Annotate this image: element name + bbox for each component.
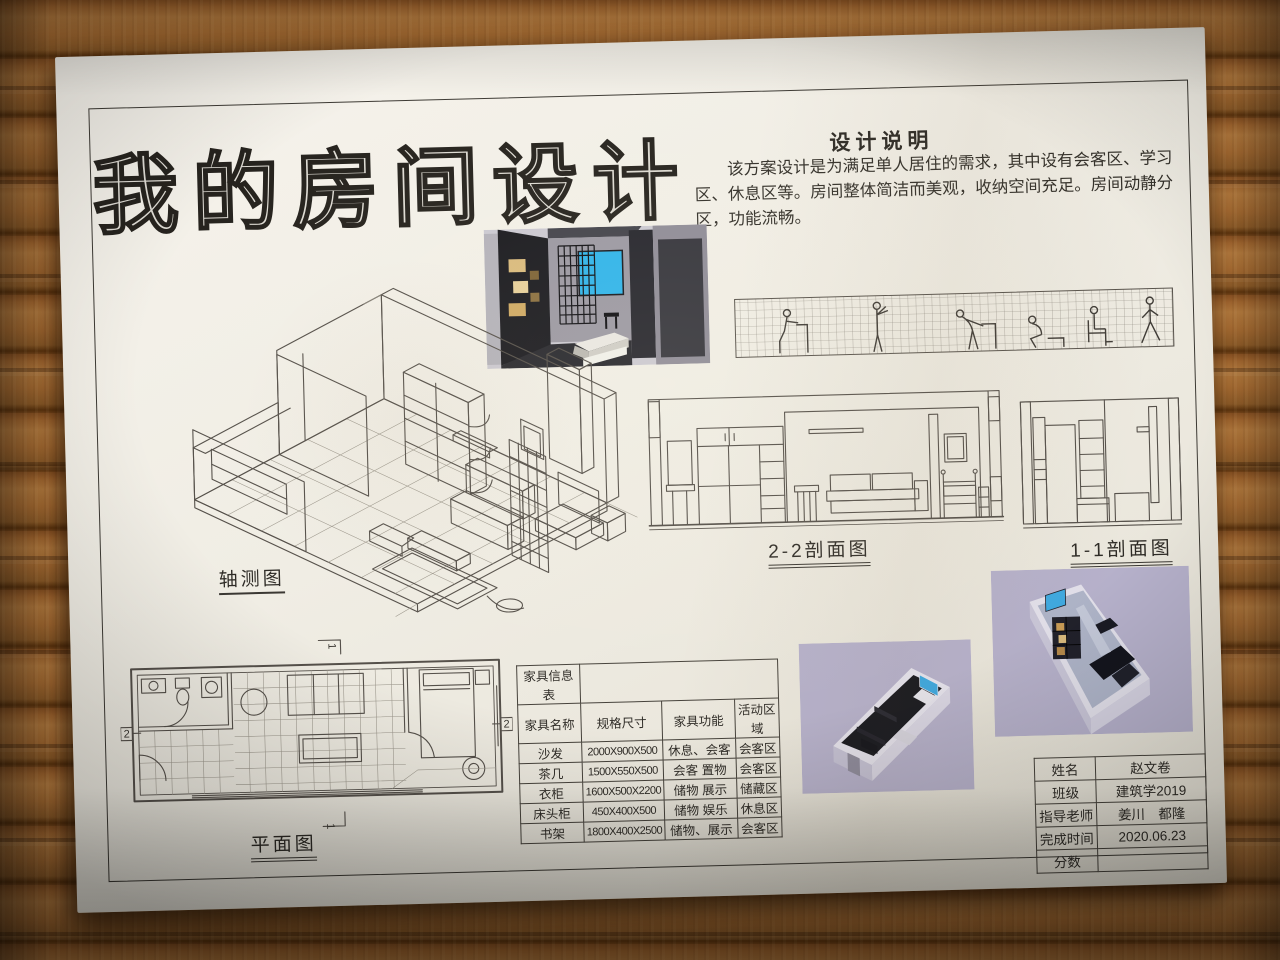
floor-plan-drawing: 1 [118,625,515,840]
plan-marker-2-left: 2 [124,728,130,740]
design-notes-body: 该方案设计是为满足单人居住的需求，其中设有会客区、学习区、休息区等。房间整体简洁… [694,145,1201,232]
label-axonometric: 轴测图 [218,563,285,595]
title-block: 姓名赵文卷 班级建筑学2019 指导老师姜川 都隆 完成时间2020.06.23… [1034,753,1209,873]
section-1-1-drawing [1012,390,1196,540]
axonometric-drawing [148,250,653,663]
col-header: 活动区域 [735,698,780,738]
label-floor-plan: 平面图 [250,829,317,863]
section-2-2-drawing [632,380,1014,548]
col-header: 规格尺寸 [581,701,663,742]
col-header: 家具名称 [518,703,582,744]
furniture-table-title: 家具信息表 [517,664,581,705]
plan-marker-1-bottom: 1 [324,823,336,829]
furniture-table: 家具信息表 家具名称 规格尺寸 家具功能 活动区域 沙发2000X900X500… [516,658,783,844]
plan-marker-2-right: 2 [503,719,509,731]
render-iso-2 [991,566,1193,737]
col-header: 家具功能 [662,699,736,740]
label-section-2-2: 2-2剖面图 [768,534,871,569]
figure-scale-strip [731,283,1178,365]
plan-marker-1-top: 1 [325,643,337,649]
render-iso-1 [799,639,975,793]
title-block-row: 分数 [1037,846,1209,873]
poster-paper: 我的房间设计 设计说明 该方案设计是为满足单人居住的需求，其中设有会客区、学习区… [55,27,1227,913]
label-section-1-1: 1-1剖面图 [1070,533,1173,568]
photo-of-design-board: 我的房间设计 设计说明 该方案设计是为满足单人居住的需求，其中设有会客区、学习区… [0,0,1280,960]
